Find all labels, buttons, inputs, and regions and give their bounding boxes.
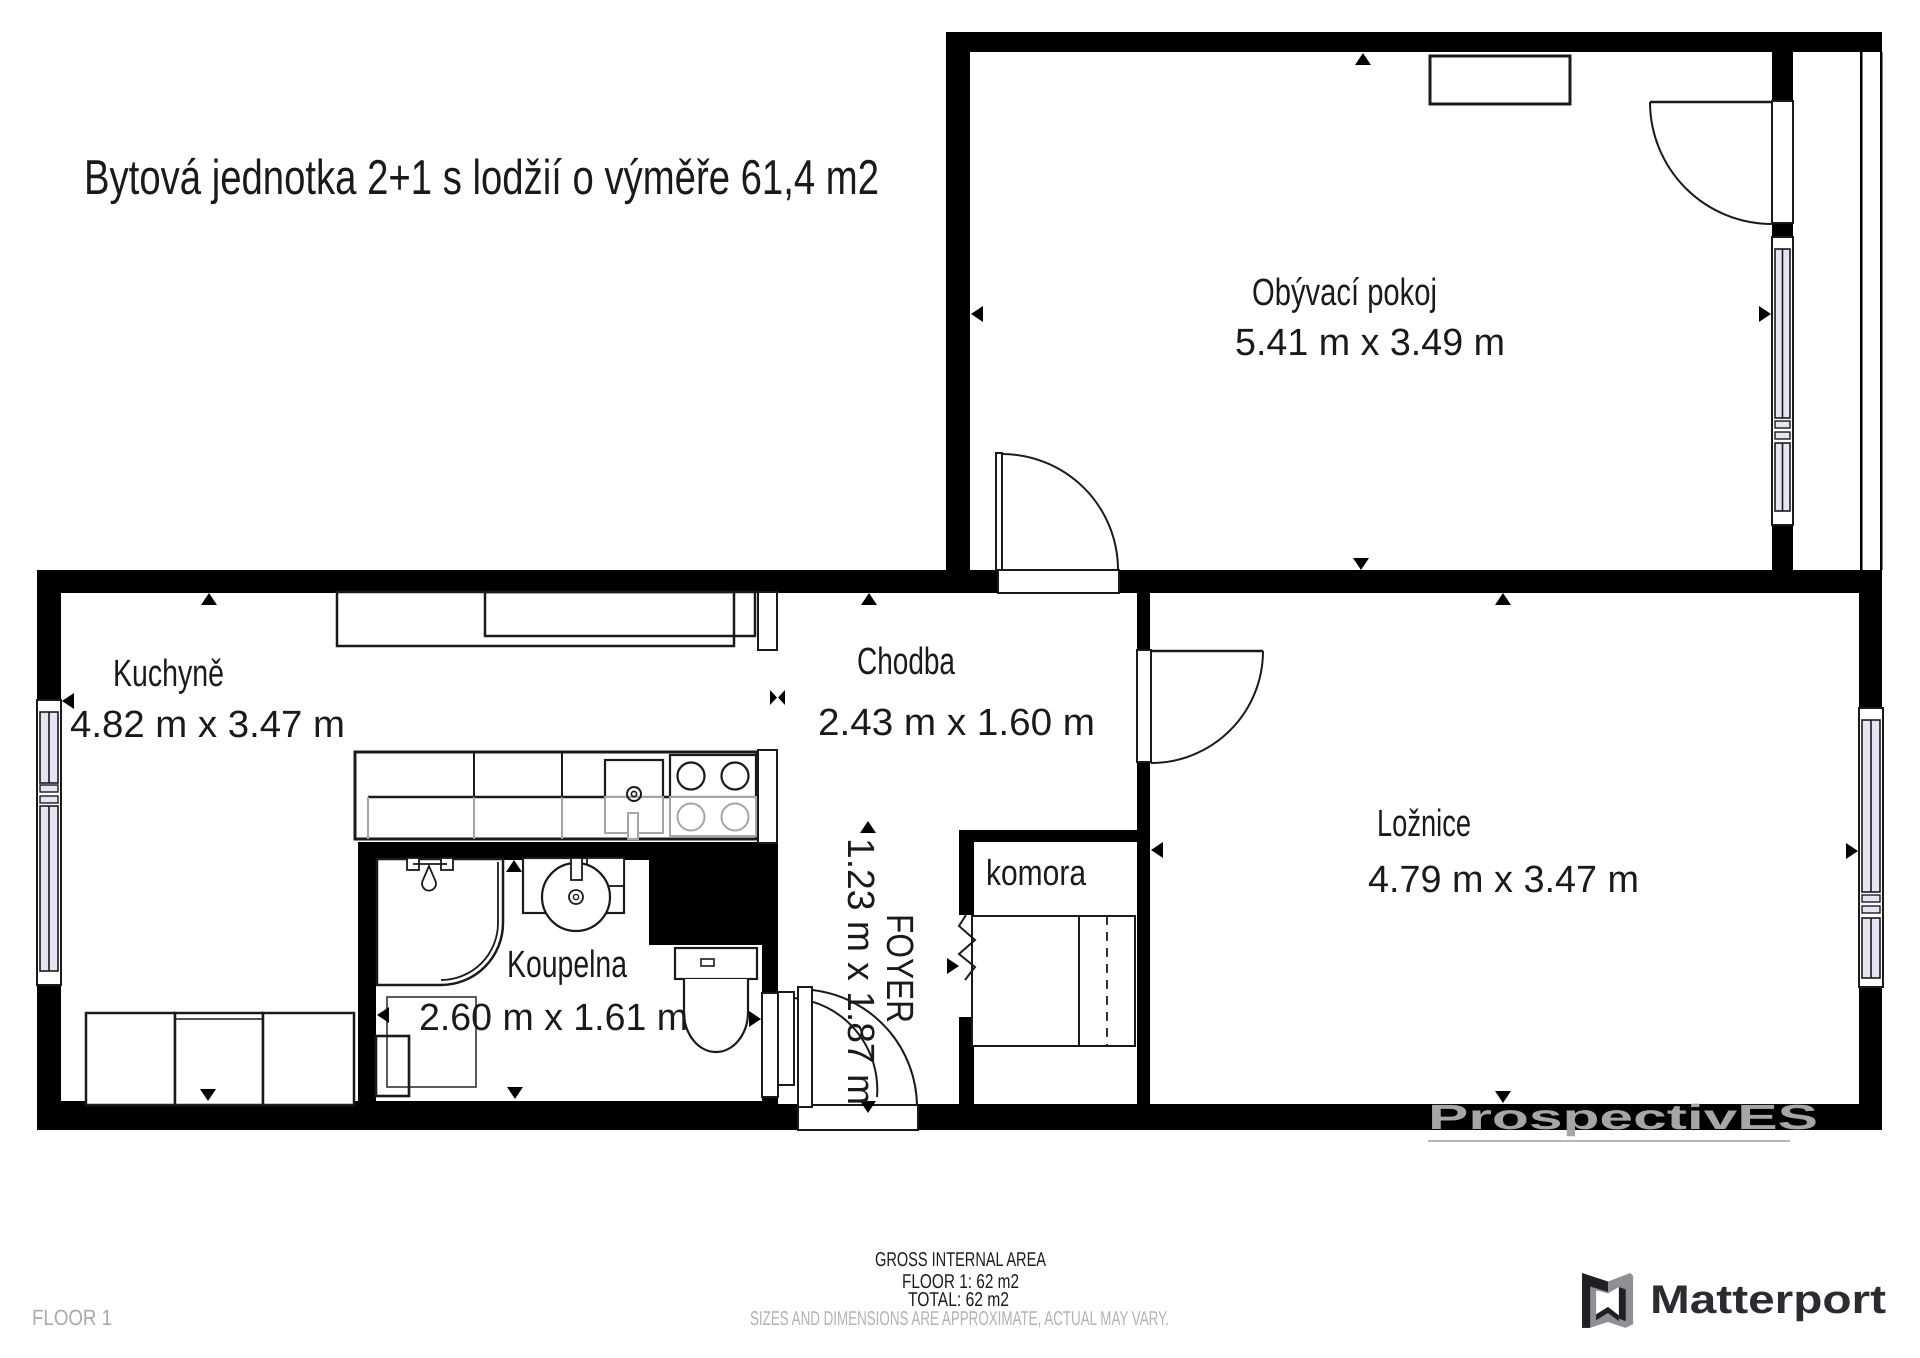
svg-text:2.43 m x 1.60 m: 2.43 m x 1.60 m <box>818 702 1095 744</box>
svg-text:Matterport: Matterport <box>1650 1278 1886 1322</box>
svg-text:SIZES AND DIMENSIONS ARE APPRO: SIZES AND DIMENSIONS ARE APPROXIMATE, AC… <box>750 1308 1169 1330</box>
svg-text:Chodba: Chodba <box>857 641 956 683</box>
svg-text:Ložnice: Ložnice <box>1377 803 1471 845</box>
svg-text:Bytová jednotka 2+1 s lodžií o: Bytová jednotka 2+1 s lodžií o výměře 61… <box>84 151 879 205</box>
svg-text:Obývací pokoj: Obývací pokoj <box>1252 272 1437 314</box>
svg-text:4.82 m x 3.47 m: 4.82 m x 3.47 m <box>70 704 345 746</box>
svg-text:1.23 m x 1.87 m: 1.23 m x 1.87 m <box>839 838 881 1105</box>
svg-text:2.60 m x 1.61 m: 2.60 m x 1.61 m <box>419 997 688 1039</box>
svg-text:FOYER: FOYER <box>878 914 920 1023</box>
svg-text:komora: komora <box>986 852 1087 893</box>
svg-text:GROSS INTERNAL AREA: GROSS INTERNAL AREA <box>875 1249 1046 1271</box>
svg-text:Kuchyně: Kuchyně <box>113 653 224 695</box>
svg-text:FLOOR 1: FLOOR 1 <box>32 1305 112 1330</box>
svg-text:5.41 m x 3.49 m: 5.41 m x 3.49 m <box>1235 322 1505 364</box>
svg-text:4.79 m x 3.47 m: 4.79 m x 3.47 m <box>1368 859 1639 901</box>
svg-text:Koupelna: Koupelna <box>507 944 628 986</box>
svg-text:ProspectivES: ProspectivES <box>1428 1098 1818 1137</box>
